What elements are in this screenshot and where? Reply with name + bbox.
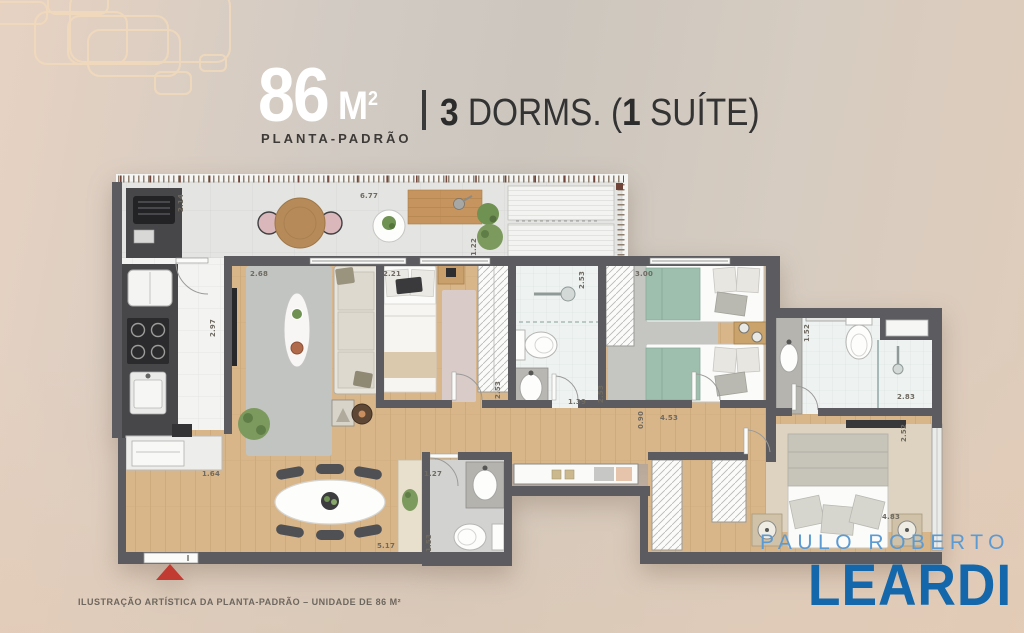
dim-suite-bath-width: 2.83 <box>897 393 915 401</box>
brand-logo-line1: PAULO ROBERTO <box>760 532 1010 553</box>
area-value: 86 <box>258 58 328 134</box>
bedroom-1 <box>384 262 510 402</box>
dim-terrace-width: 6.77 <box>360 192 378 200</box>
dim-bedroom1-width: 2.21 <box>383 270 401 278</box>
dim-bath1-depth: 2.53 <box>494 381 502 399</box>
brand-logo-line2: LEARDI <box>780 557 1012 615</box>
area-unit-exponent: 2 <box>368 88 378 110</box>
dim-suite-depth: 2.52 <box>900 424 908 442</box>
terrace <box>116 174 628 260</box>
dim-dining-width: 5.17 <box>377 542 395 550</box>
floor-plan-drawing <box>112 172 957 592</box>
header-divider <box>422 90 426 130</box>
disclaimer-caption: ILUSTRAÇÃO ARTÍSTICA DA PLANTA-PADRÃO – … <box>78 597 401 607</box>
area-unit-letter: M <box>338 84 368 128</box>
dim-kitchen-depth: 2.97 <box>209 319 217 337</box>
plan-header: 86 M2 PLANTA-PADRÃO 3 DORMS. (1 SUÍTE) <box>0 0 1024 170</box>
dim-hall-width: 4.53 <box>660 414 678 422</box>
dim-lavabo-depth: 1.53 <box>425 534 433 552</box>
floor-plan: 2.14 6.77 1.22 2.68 2.21 2.53 3.00 2.97 … <box>112 172 957 592</box>
brand-logo: PAULO ROBERTO LEARDI <box>760 532 1012 615</box>
plan-subtitle: PLANTA-PADRÃO <box>261 131 411 146</box>
suite-count: 1 <box>622 92 641 134</box>
dim-lavabo-width: 1.27 <box>424 470 442 478</box>
suite-label: SUÍTE) <box>641 92 760 134</box>
dorm-label: DORMS. ( <box>459 92 622 134</box>
entrance-arrow-icon <box>156 564 184 580</box>
dim-terrace-depth: 2.14 <box>177 194 185 212</box>
dim-bedroom2-width: 3.00 <box>635 270 653 278</box>
dorm-count: 3 <box>440 92 459 134</box>
dim-bath1-width: 1.39 <box>568 398 586 406</box>
dim-bath1-shower-depth: 2.53 <box>578 271 586 289</box>
dim-terrace-side: 1.22 <box>470 238 478 256</box>
dim-suite-width: 4.83 <box>882 513 900 521</box>
dim-hall-depth: 0.90 <box>637 411 645 429</box>
dim-kitchen-pass: 1.64 <box>202 470 220 478</box>
dim-bedroom2-depth: 2.53 <box>597 385 605 403</box>
specs-text: 3 DORMS. (1 SUÍTE) <box>440 94 760 132</box>
bedroom-2 <box>606 262 766 402</box>
area-unit: M2 <box>338 86 378 126</box>
page: 86 M2 PLANTA-PADRÃO 3 DORMS. (1 SUÍTE) <box>0 0 1024 633</box>
dim-living-width: 2.68 <box>250 270 268 278</box>
dim-suite-bath-depth: 1.52 <box>803 324 811 342</box>
